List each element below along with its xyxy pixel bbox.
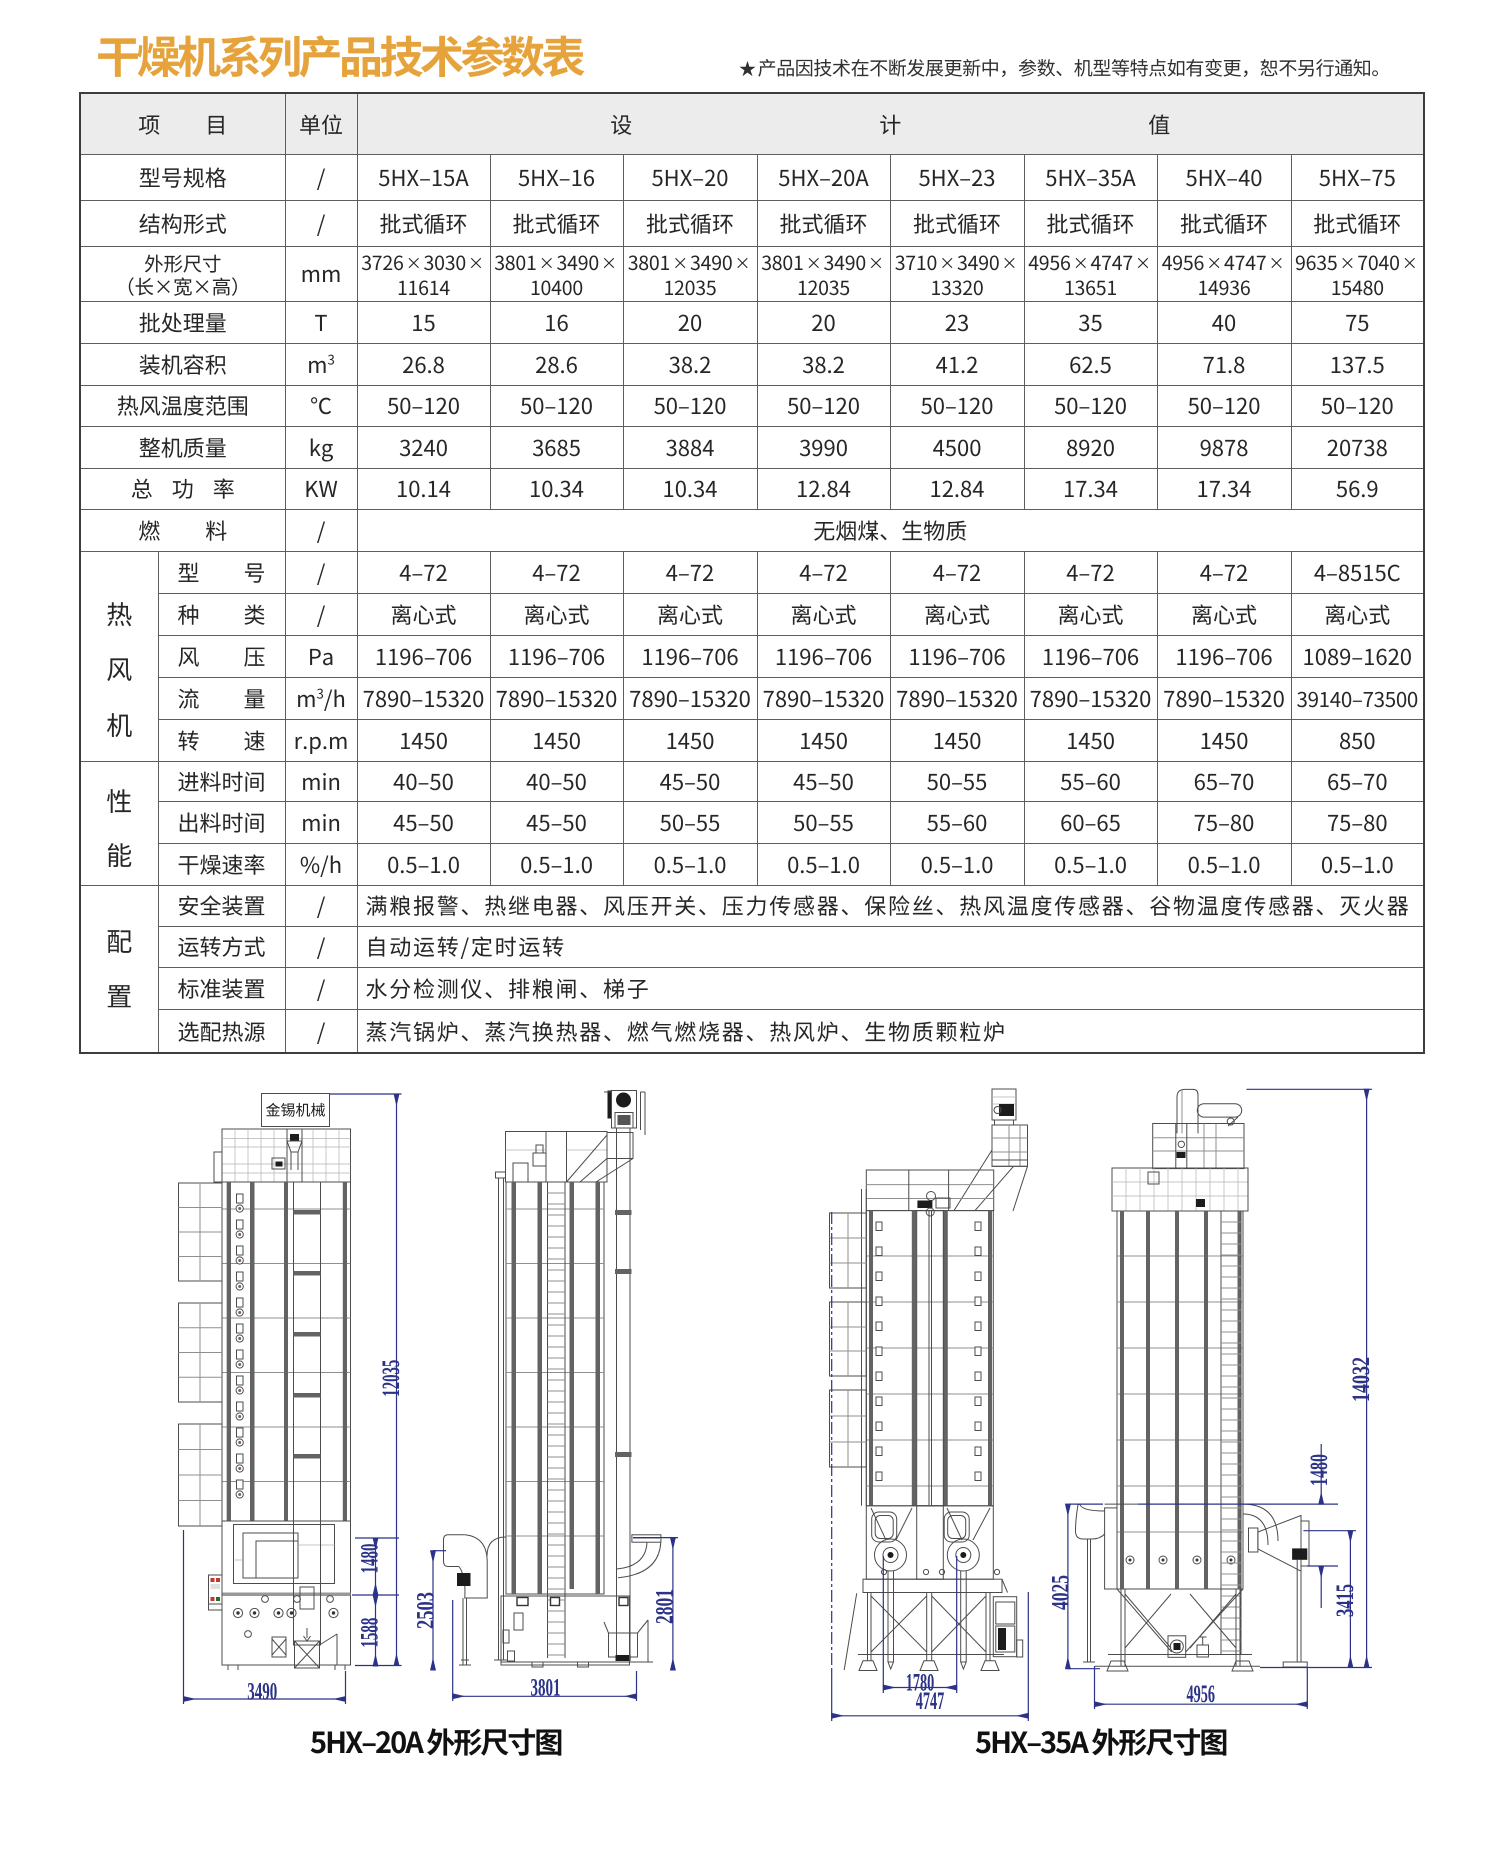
svg-text:2503: 2503 [413,1592,440,1629]
svg-text:2801: 2801 [652,1589,679,1624]
svg-text:3801: 3801 [531,1675,561,1702]
svg-text:1480: 1480 [1306,1454,1333,1486]
svg-text:4025: 4025 [1048,1575,1075,1610]
svg-text:1480: 1480 [357,1544,384,1574]
svg-text:3415: 3415 [1332,1584,1359,1617]
svg-text:4747: 4747 [916,1688,945,1715]
svg-text:14032: 14032 [1348,1357,1375,1402]
svg-text:金锡机械: 金锡机械 [265,1100,325,1121]
svg-text:4956: 4956 [1187,1681,1216,1708]
svg-text:3490: 3490 [247,1679,277,1706]
svg-text:12035: 12035 [378,1360,405,1397]
svg-text:1588: 1588 [357,1618,384,1648]
